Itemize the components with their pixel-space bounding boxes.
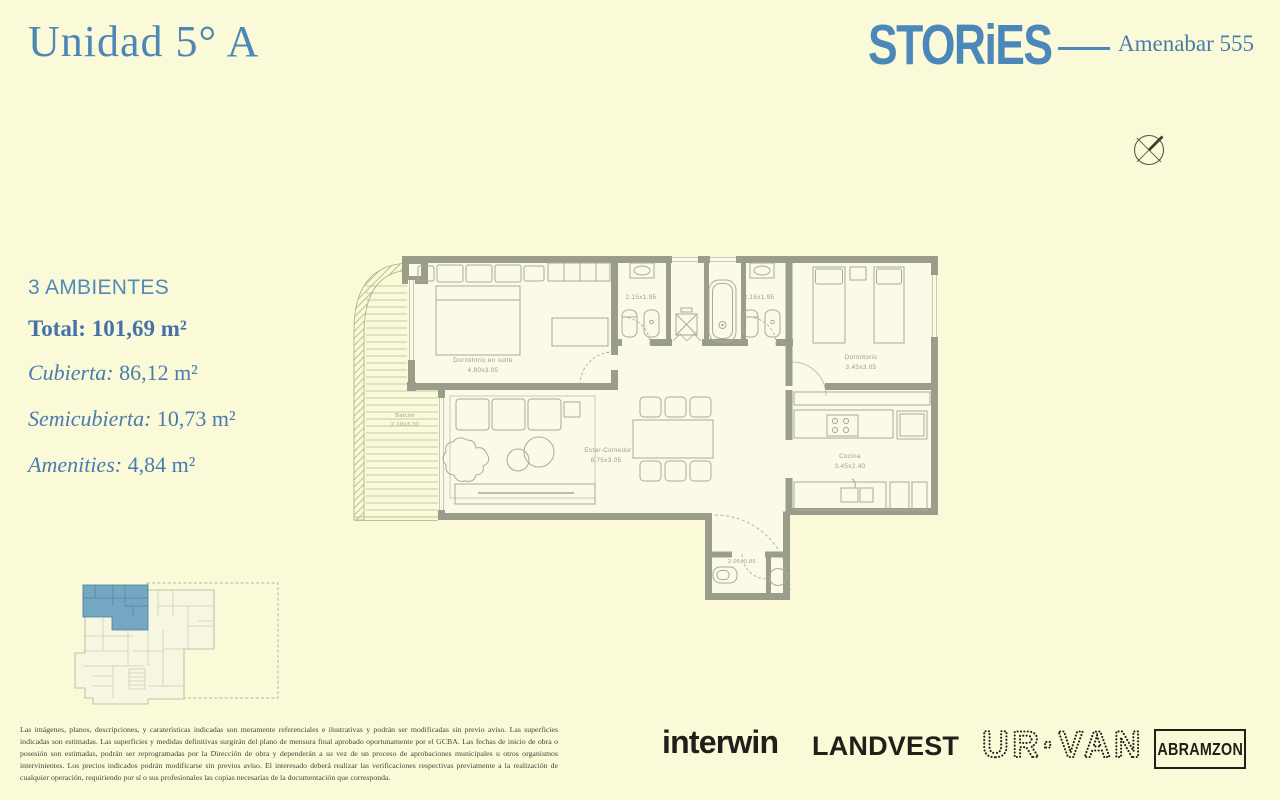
area-value: 4,84 m²	[128, 452, 196, 477]
area-label: Semicubierta:	[28, 406, 151, 431]
brochure-page: Unidad 5° A STORiES Amenabar 555 3 AMBIE…	[0, 0, 1280, 800]
room-label: Balcón	[395, 413, 415, 419]
area-item-cubierta: Cubierta: 86,12 m²	[28, 360, 236, 386]
urvang-logo: UR·VANG	[980, 718, 1142, 770]
urvang-logo-text: UR·VANG	[982, 724, 1142, 765]
deck-planks-upper	[366, 286, 407, 384]
room-dims: 2.10x3.30	[391, 422, 419, 428]
balcony-edge-hatch	[354, 263, 410, 520]
rooms-count: 3 AMBIENTES	[28, 276, 236, 300]
room-dims: 3.45x2.40	[835, 463, 866, 470]
abramzon-logo: ABRAMZON	[1154, 729, 1246, 769]
room-dims: 2.15x1.95	[744, 294, 775, 301]
brand-divider	[1058, 47, 1110, 50]
area-label: Amenities:	[28, 452, 122, 477]
room-dims: 2.15x1.95	[626, 294, 657, 301]
brand-logo: STORiES	[868, 12, 1051, 78]
area-value: 86,12 m²	[119, 360, 198, 385]
landvest-logo: LANDVEST	[812, 731, 959, 762]
room-dims: 4.80x3.05	[468, 367, 499, 374]
room-label: Dormitorio en suite	[453, 357, 513, 364]
page-title: Unidad 5° A	[28, 16, 259, 67]
deck-planks-lower	[366, 391, 438, 510]
interwin-logo: interwin	[662, 724, 778, 761]
legal-disclaimer: Las imágenes, planos, descripciones, y c…	[20, 724, 558, 784]
north-arrow-icon	[1126, 127, 1172, 173]
room-dims: 8.75x3.05	[591, 457, 622, 464]
total-area: Total: 101,69 m²	[28, 316, 236, 342]
area-value: 10,73 m²	[157, 406, 236, 431]
total-label: Total:	[28, 316, 86, 341]
area-item-semicubierta: Semicubierta: 10,73 m²	[28, 406, 236, 432]
floor-plan: Dormitorio en suite 4.80x3.05 2.15x1.95 …	[350, 250, 940, 605]
total-value: 101,69 m²	[92, 316, 187, 341]
abramzon-logo-text: ABRAMZON	[1157, 739, 1243, 760]
unit-specs: 3 AMBIENTES Total: 101,69 m² Cubierta: 8…	[28, 276, 236, 498]
area-item-amenities: Amenities: 4,84 m²	[28, 452, 236, 478]
project-name: Amenabar 555	[1118, 31, 1254, 57]
area-label: Cubierta:	[28, 360, 114, 385]
room-label: Dormitorio	[845, 354, 878, 361]
room-dims: 3.45x3.05	[846, 364, 877, 371]
room-dims: 2.05x0.85	[728, 559, 756, 565]
key-plan	[73, 576, 285, 706]
room-label: Estar-Comedor	[584, 447, 631, 454]
room-label: Cocina	[839, 453, 861, 460]
